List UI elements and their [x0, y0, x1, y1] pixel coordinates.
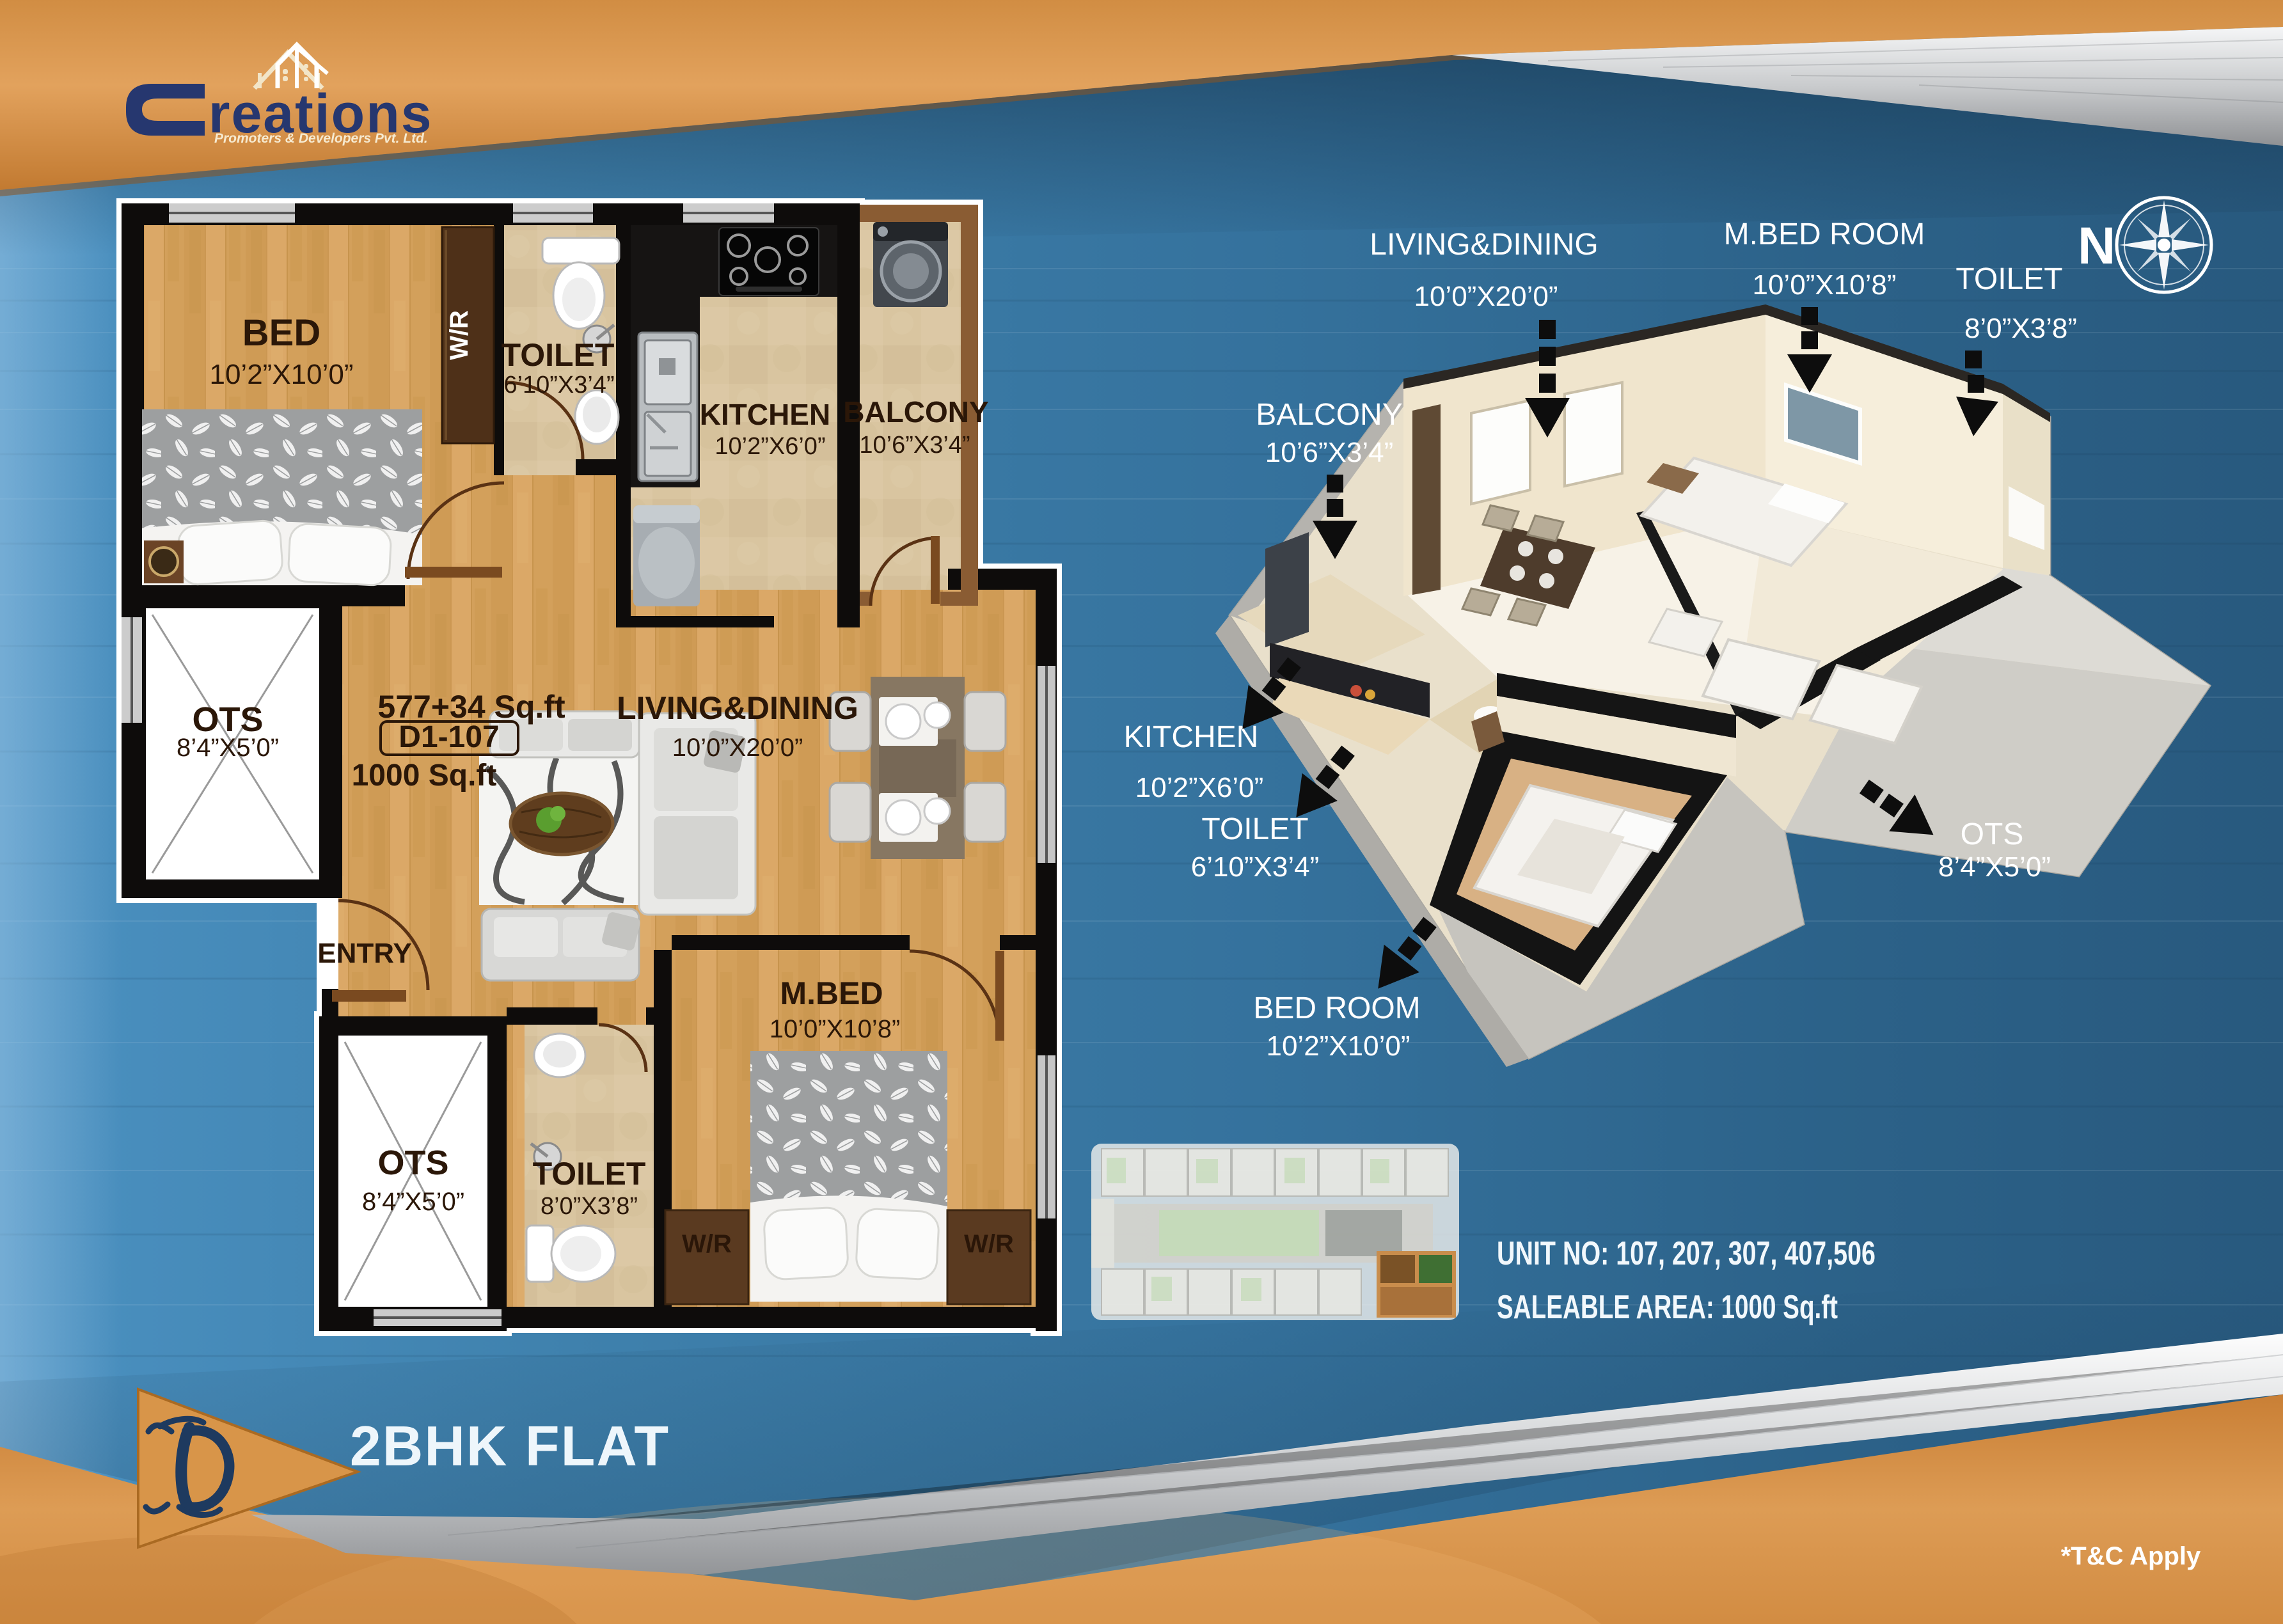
svg-text:10’2”X10’0”: 10’2”X10’0” — [209, 359, 353, 390]
svg-text:LIVING&DINING: LIVING&DINING — [617, 690, 858, 726]
svg-text:10’2”X10’0”: 10’2”X10’0” — [1266, 1030, 1410, 1062]
svg-text:UNIT NO: 107, 207, 307, 407,50: UNIT NO: 107, 207, 307, 407,506 — [1497, 1235, 1876, 1272]
svg-text:BED: BED — [242, 312, 320, 354]
svg-text:W/R: W/R — [682, 1230, 732, 1258]
svg-text:8’0”X3’8”: 8’0”X3’8” — [541, 1193, 638, 1220]
svg-text:BALCONY: BALCONY — [1256, 398, 1402, 432]
svg-text:ENTRY: ENTRY — [317, 938, 412, 969]
svg-text:8’4”X5’0”: 8’4”X5’0” — [362, 1188, 464, 1216]
svg-text:LIVING&DINING: LIVING&DINING — [1370, 228, 1598, 262]
svg-text:2BHK FLAT: 2BHK FLAT — [350, 1414, 670, 1478]
svg-text:10’2”X6’0”: 10’2”X6’0” — [715, 433, 825, 460]
svg-text:OTS: OTS — [192, 700, 263, 739]
svg-text:OTS: OTS — [1961, 817, 2024, 851]
svg-text:8’4”X5’0”: 8’4”X5’0” — [177, 734, 279, 762]
svg-text:10’0”X10’8”: 10’0”X10’8” — [1752, 269, 1896, 301]
svg-text:6’10”X3’4”: 6’10”X3’4” — [503, 372, 614, 398]
svg-text:OTS: OTS — [377, 1144, 448, 1182]
svg-text:KITCHEN: KITCHEN — [1124, 720, 1259, 754]
svg-text:W/R: W/R — [445, 310, 473, 360]
svg-text:SALEABLE AREA: 1000 Sq.ft: SALEABLE AREA: 1000 Sq.ft — [1497, 1289, 1838, 1326]
svg-text:6’10”X3’4”: 6’10”X3’4” — [1191, 851, 1320, 883]
svg-text:10’6”X3’4”: 10’6”X3’4” — [859, 432, 970, 459]
svg-text:8’0”X3’8”: 8’0”X3’8” — [1964, 313, 2077, 344]
svg-text:*T&C Apply: *T&C Apply — [2061, 1542, 2201, 1570]
svg-text:10’2”X6’0”: 10’2”X6’0” — [1135, 772, 1264, 803]
svg-text:TOILET: TOILET — [502, 337, 615, 373]
svg-text:1000 Sq.ft: 1000 Sq.ft — [352, 759, 497, 792]
svg-text:577+34 Sq.ft: 577+34 Sq.ft — [377, 689, 565, 725]
svg-text:10’0”X20’0”: 10’0”X20’0” — [1414, 281, 1558, 312]
svg-text:D1-107: D1-107 — [399, 720, 499, 754]
svg-text:TOILET: TOILET — [533, 1156, 646, 1192]
svg-text:W/R: W/R — [964, 1230, 1014, 1258]
svg-text:M.BED: M.BED — [780, 975, 883, 1011]
svg-text:10’6”X3’4”: 10’6”X3’4” — [1265, 437, 1394, 468]
svg-text:KITCHEN: KITCHEN — [700, 398, 830, 431]
svg-text:N: N — [2078, 217, 2115, 275]
svg-text:10’0”X10’8”: 10’0”X10’8” — [770, 1015, 901, 1043]
svg-text:8’4”X5’0”: 8’4”X5’0” — [1938, 851, 2051, 883]
svg-text:TOILET: TOILET — [1955, 262, 2062, 296]
svg-text:BED ROOM: BED ROOM — [1253, 991, 1420, 1025]
svg-text:M.BED ROOM: M.BED ROOM — [1724, 217, 1925, 251]
svg-text:BALCONY: BALCONY — [843, 395, 988, 429]
svg-text:Promoters & Developers Pvt. Lt: Promoters & Developers Pvt. Ltd. — [214, 131, 428, 146]
svg-text:10’0”X20’0”: 10’0”X20’0” — [672, 734, 803, 762]
svg-text:TOILET: TOILET — [1201, 812, 1308, 846]
